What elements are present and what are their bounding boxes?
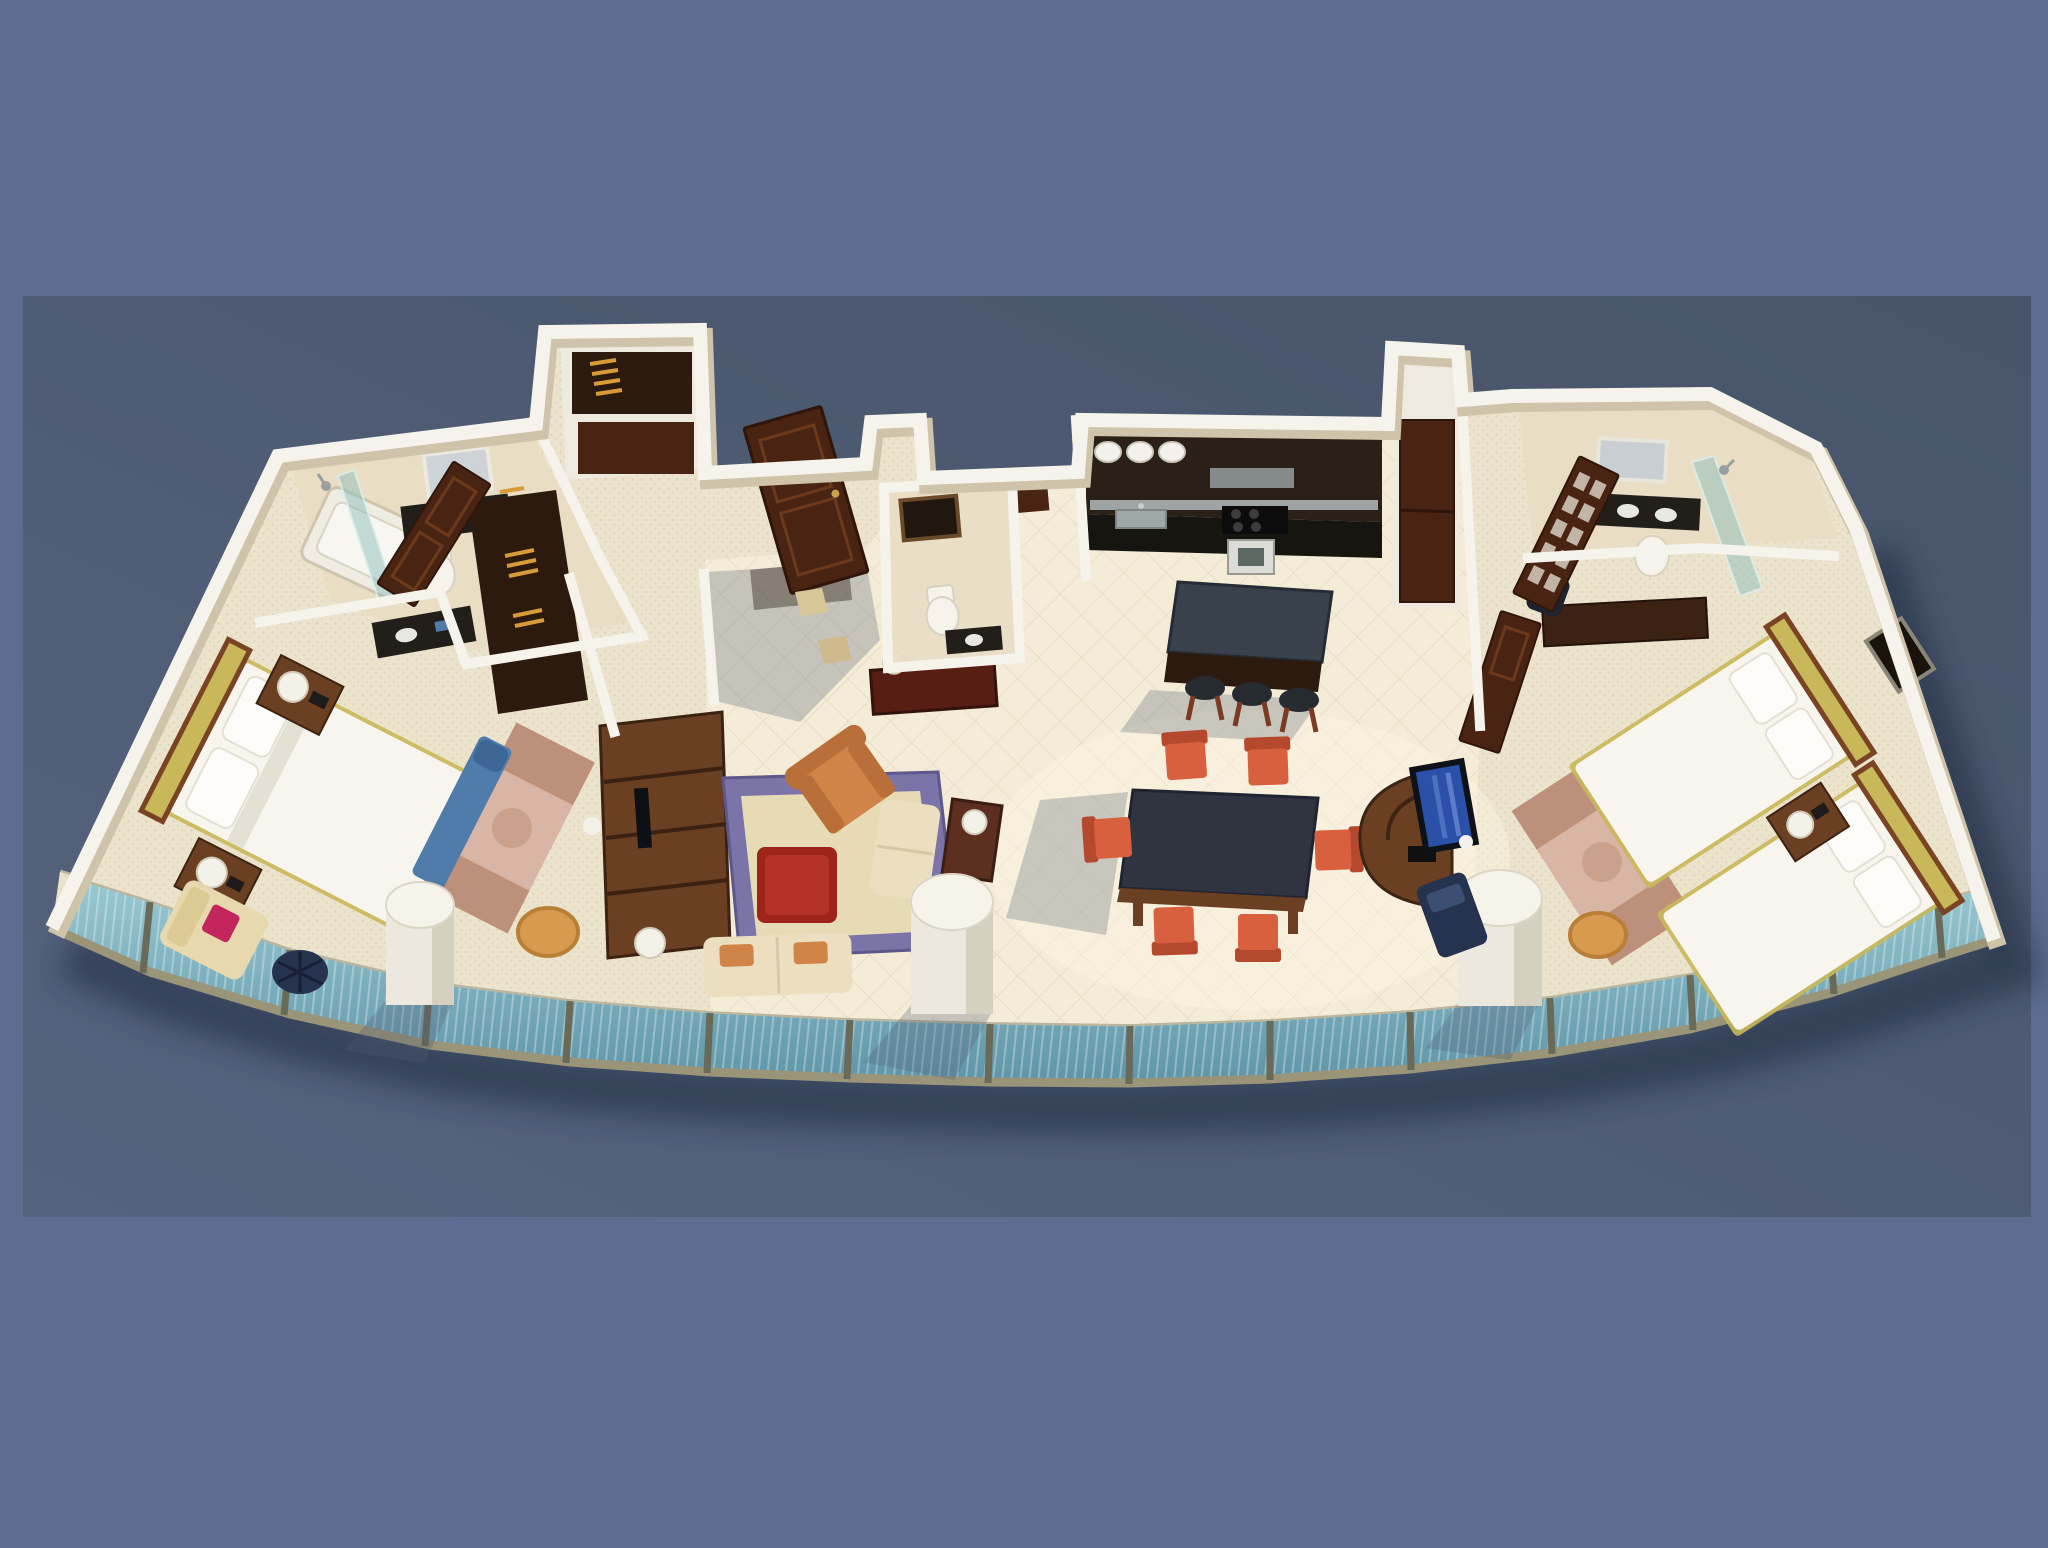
powder-vanity <box>945 626 1003 655</box>
wire-stool <box>272 950 328 994</box>
accent-floor-tile <box>818 636 852 664</box>
floor-plan-render <box>0 0 2048 1548</box>
storage-basket <box>518 908 578 956</box>
striped-pillow <box>719 944 754 967</box>
mug <box>1459 835 1473 849</box>
side-table <box>942 799 1002 881</box>
dining-chair <box>1235 914 1281 962</box>
closet-cabinet <box>578 422 694 474</box>
dining-chair <box>1161 729 1210 780</box>
striped-pillow <box>793 941 828 964</box>
desk <box>1542 598 1708 647</box>
red-ottoman <box>757 847 837 923</box>
dining-chair <box>1314 826 1364 874</box>
cooktop <box>1222 506 1288 534</box>
island <box>1164 582 1332 692</box>
powder-room <box>884 484 1018 668</box>
candle <box>583 817 601 835</box>
cream-sofa <box>703 932 853 997</box>
range-hood <box>1210 468 1294 488</box>
oven-window <box>1238 548 1264 566</box>
accent-floor-tile <box>795 588 828 616</box>
open-closet <box>572 352 692 414</box>
storage-basket <box>1570 913 1626 957</box>
dining-chair <box>1244 736 1292 786</box>
floor-lamp <box>635 928 665 958</box>
dining-chair <box>1081 814 1132 863</box>
screenshot-canvas <box>0 0 2048 1548</box>
plate-shelf <box>1095 442 1185 462</box>
vanity-counter <box>1595 493 1701 530</box>
dining-chair <box>1150 906 1198 956</box>
powder-mirror <box>900 496 959 541</box>
